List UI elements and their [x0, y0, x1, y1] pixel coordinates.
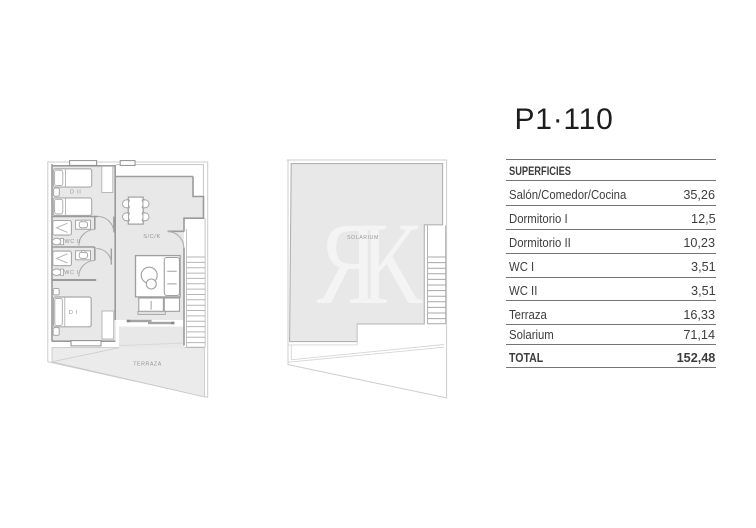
- svg-text:K: K: [361, 199, 423, 329]
- svg-text:SOLARIUM: SOLARIUM: [347, 235, 379, 241]
- svg-text:WC II: WC II: [65, 239, 81, 245]
- svg-text:WC I: WC I: [64, 270, 78, 276]
- svg-text:TERRAZA: TERRAZA: [133, 361, 162, 367]
- svg-text:S/C/K: S/C/K: [143, 234, 161, 240]
- svg-text:D I: D I: [69, 310, 78, 316]
- svg-text:D II: D II: [70, 189, 82, 195]
